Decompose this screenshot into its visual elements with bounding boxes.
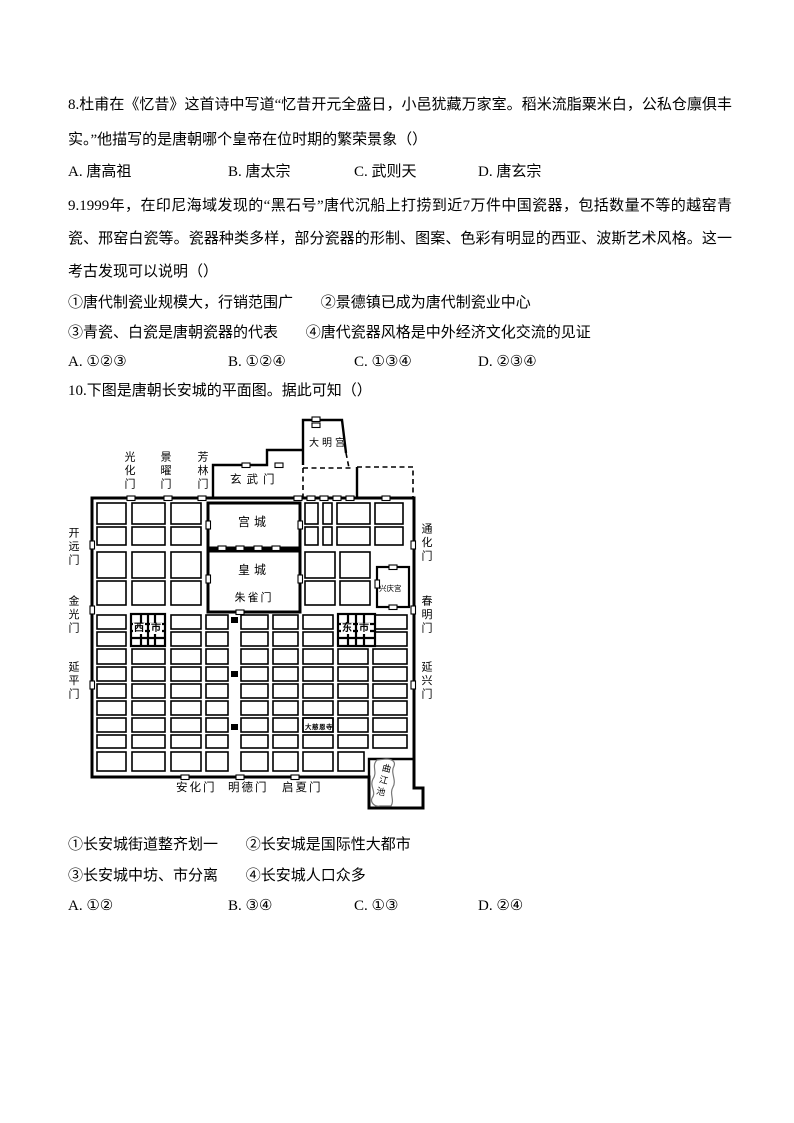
option-a: A. ①② <box>68 896 113 915</box>
map-label-mingde-gate: 明德门 <box>228 782 269 795</box>
map-label-yanxing-gate: 延兴门 <box>419 661 432 702</box>
map-label-east-market: 东市 <box>341 622 370 635</box>
map-label-chunming-gate: 春明门 <box>419 595 432 636</box>
question-9-statements-row-2: ③青瓷、白瓷是唐朝瓷器的代表 ④唐代瓷器风格是中外经济文化交流的见证 <box>68 322 591 344</box>
map-label-xingqing-palace: 兴庆宫 <box>379 582 402 595</box>
map-label-tonghua-gate: 通化门 <box>419 523 432 564</box>
map-label-zhuque-gate: 朱雀门 <box>208 592 300 605</box>
statement-3: ③长安城中坊、市分离 <box>68 868 218 884</box>
option-d: D. 唐玄宗 <box>478 160 541 181</box>
map-label-kaiyuan-gate: 开远门 <box>66 527 79 568</box>
changan-city-map: 光化门 景曜门 芳林门 玄武门 大明宫 开远门 金光门 延平门 通化门 春明门 … <box>60 415 440 815</box>
map-label-imperial-city: 皇城 <box>208 564 300 577</box>
question-10-statements-row-2: ③长安城中坊、市分离 ④长安城人口众多 <box>68 865 366 887</box>
question-10: 10.下图是唐朝长安城的平面图。据此可知（） <box>68 374 732 409</box>
statement-2: ②长安城是国际性大都市 <box>246 837 411 853</box>
option-b: B. 唐太宗 <box>228 160 291 181</box>
question-9-statements-row-1: ①唐代制瓷业规模大，行销范围广 ②景德镇已成为唐代制瓷业中心 <box>68 292 531 314</box>
option-c: C. ①③④ <box>354 352 412 371</box>
option-a: A. ①②③ <box>68 352 127 371</box>
map-label-anhua-gate: 安化门 <box>176 782 217 795</box>
map-label-daming-palace: 大明宫 <box>309 437 348 450</box>
question-10-text: 10.下图是唐朝长安城的平面图。据此可知（） <box>68 374 732 409</box>
question-8-text: 8.杜甫在《忆昔》这首诗中写道“忆昔开元全盛日，小邑犹藏万家室。稻米流脂粟米白，… <box>68 88 732 158</box>
option-c: C. ①③ <box>354 896 398 915</box>
statement-2: ②景德镇已成为唐代制瓷业中心 <box>321 295 531 311</box>
question-9: 9.1999年，在印尼海域发现的“黑石号”唐代沉船上打捞到近7万件中国瓷器，包括… <box>68 190 732 289</box>
statement-1: ①唐代制瓷业规模大，行销范围广 <box>68 295 293 311</box>
statement-3: ③青瓷、白瓷是唐朝瓷器的代表 <box>68 325 278 341</box>
map-label-xuanwu-gate: 玄武门 <box>230 474 280 487</box>
option-a: A. 唐高祖 <box>68 160 131 181</box>
statement-4: ④唐代瓷器风格是中外经济文化交流的见证 <box>306 325 591 341</box>
statement-4: ④长安城人口众多 <box>246 868 366 884</box>
map-label-daciensi-temple: 大慈恩寺 <box>305 721 333 734</box>
daming-palace-outline <box>303 420 354 498</box>
map-label-palace-city: 宫城 <box>208 516 300 529</box>
map-label-jingyao-gate: 景曜门 <box>158 451 171 492</box>
question-8-options: A. 唐高祖 B. 唐太宗 C. 武则天 D. 唐玄宗 <box>68 160 748 184</box>
option-d: D. ②④ <box>478 896 523 915</box>
map-label-qixia-gate: 启夏门 <box>282 782 323 795</box>
street-marks <box>231 617 238 730</box>
map-label-west-market: 西市 <box>133 622 162 635</box>
option-b: B. ①②④ <box>228 352 286 371</box>
map-label-yanping-gate: 延平门 <box>66 661 79 702</box>
map-label-jinguang-gate: 金光门 <box>66 595 79 636</box>
question-9-options: A. ①②③ B. ①②④ C. ①③④ D. ②③④ <box>68 352 748 376</box>
option-d: D. ②③④ <box>478 352 537 371</box>
question-8: 8.杜甫在《忆昔》这首诗中写道“忆昔开元全盛日，小邑犹藏万家室。稻米流脂粟米白，… <box>68 88 732 158</box>
statement-1: ①长安城街道整齐划一 <box>68 837 218 853</box>
northeast-annex-outline <box>357 467 413 498</box>
question-10-options: A. ①② B. ③④ C. ①③ D. ②④ <box>68 896 748 920</box>
map-label-fanglin-gate: 芳林门 <box>195 451 208 492</box>
question-10-statements-row-1: ①长安城街道整齐划一 ②长安城是国际性大都市 <box>68 834 411 856</box>
question-9-text: 9.1999年，在印尼海域发现的“黑石号”唐代沉船上打捞到近7万件中国瓷器，包括… <box>68 190 732 289</box>
map-label-guanghua-gate: 光化门 <box>122 451 135 492</box>
option-c: C. 武则天 <box>354 160 417 181</box>
option-b: B. ③④ <box>228 896 272 915</box>
exam-page: 8.杜甫在《忆昔》这首诗中写道“忆昔开元全盛日，小邑犹藏万家室。稻米流脂粟米白，… <box>0 0 794 1123</box>
